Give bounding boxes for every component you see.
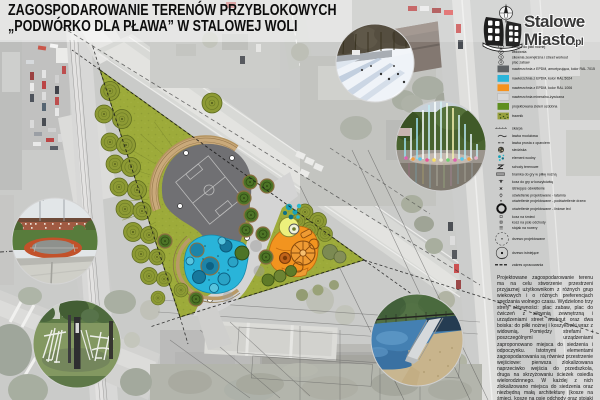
svg-text:4: 4 (500, 61, 502, 65)
svg-text:nawierzchnia mineralno-żywiczn: nawierzchnia mineralno-żywiczna (512, 95, 564, 99)
svg-text:trawnik: trawnik (512, 114, 523, 118)
svg-text:nawierzchnia z EPDM, kolor RAL: nawierzchnia z EPDM, kolor RAL 5024 (512, 77, 572, 81)
svg-text:1: 1 (500, 45, 502, 49)
svg-text:istniejące oświetlenie: istniejące oświetlenie (512, 187, 545, 191)
svg-text:kosz do gry w koszykówkę: kosz do gry w koszykówkę (512, 180, 553, 184)
svg-text:ławka modułowa: ławka modułowa (512, 134, 538, 138)
svg-text:widownia: widownia (512, 50, 526, 54)
svg-text:schody terenowe: schody terenowe (512, 165, 539, 169)
svg-text:zakres opracowania: zakres opracowania (512, 263, 543, 267)
svg-text:boisko do piłki nożnej: boisko do piłki nożnej (512, 45, 545, 49)
svg-text:projektowana zieleń ozdobna: projektowana zieleń ozdobna (512, 105, 557, 109)
svg-text:oświetlenie projektowane - pod: oświetlenie projektowane - podświetlenie… (512, 199, 586, 203)
svg-text:kosz na śmieci: kosz na śmieci (512, 215, 535, 219)
svg-text:kosz na psie odchody: kosz na psie odchody (512, 220, 546, 224)
svg-text:plac zabaw: plac zabaw (512, 61, 530, 65)
svg-text:3: 3 (500, 55, 502, 59)
svg-text:siedziska: siedziska (512, 148, 526, 152)
svg-text:ławka prosta z oparciem: ławka prosta z oparciem (512, 141, 550, 145)
svg-text:oświetlenie projektowane - lat: oświetlenie projektowane - latarnia (512, 193, 566, 197)
svg-text:siłownia zewnętrzna i street w: siłownia zewnętrzna i street workout (512, 55, 568, 59)
svg-text:stojak na rowery: stojak na rowery (512, 226, 538, 230)
svg-text:2: 2 (500, 50, 502, 54)
svg-text:drzewo istniejące: drzewo istniejące (512, 251, 539, 255)
svg-text:nawierzchnia z EPDM, kolor RAL: nawierzchnia z EPDM, kolor RAL 1006 (512, 86, 572, 90)
svg-text:drzewo projektowane: drzewo projektowane (512, 237, 545, 241)
svg-text:.pl: .pl (573, 37, 584, 48)
svg-text:element wodny: element wodny (512, 156, 536, 160)
svg-text:oświetlenie projektowane - lin: oświetlenie projektowane - liniowe led (512, 207, 571, 211)
svg-text:nawierzchnia z EPDM, amortyzuj: nawierzchnia z EPDM, amortyzująca, kolor… (512, 67, 595, 71)
svg-text:skarpa: skarpa (512, 127, 523, 131)
svg-text:bramka do gry w piłkę nożną: bramka do gry w piłkę nożną (512, 172, 557, 176)
svg-text:Stalowe: Stalowe (524, 12, 585, 31)
